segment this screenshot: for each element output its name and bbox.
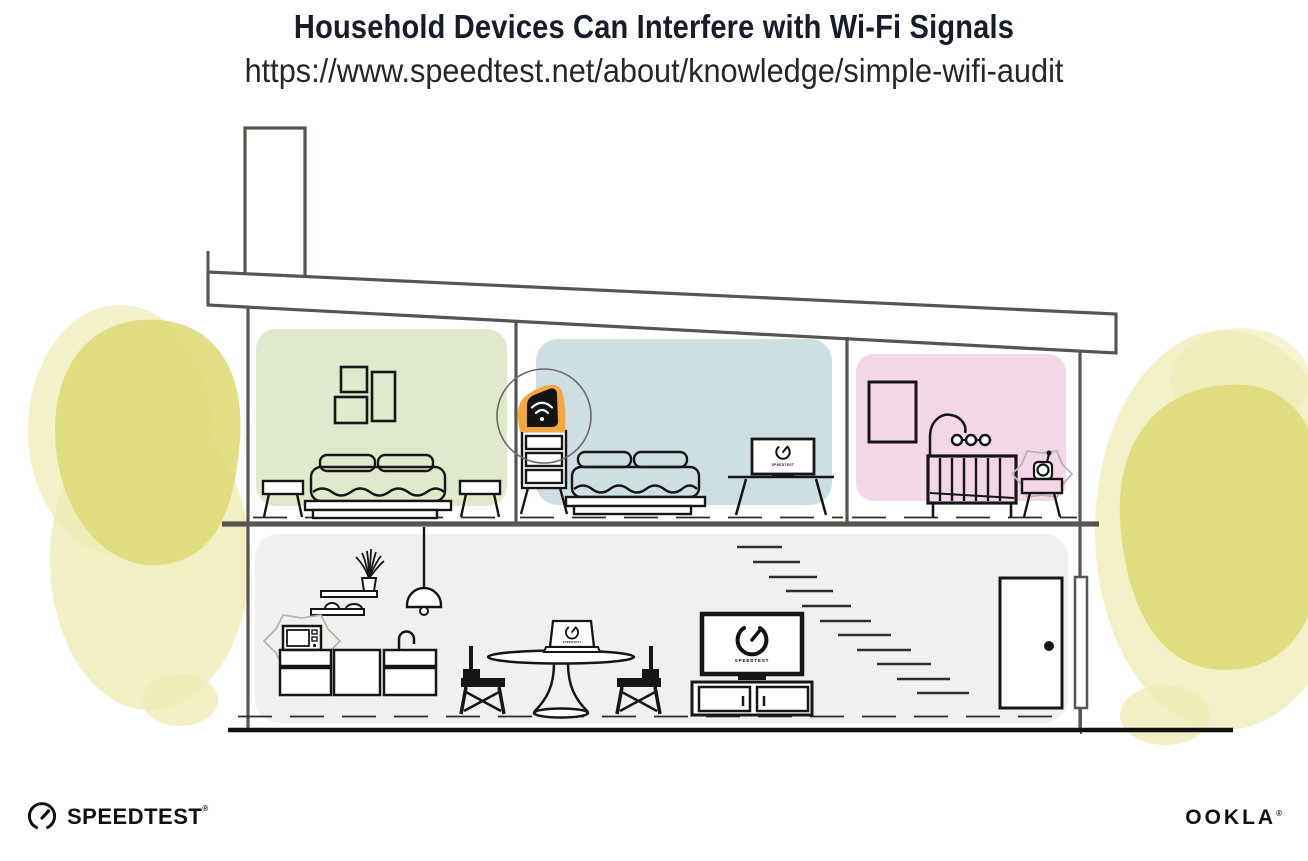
ookla-logo: OOKLA®	[1185, 806, 1282, 830]
laptop: SPEEDTEST	[544, 621, 600, 652]
speedtest-gauge-icon	[26, 801, 58, 833]
bedroom-blue-wall	[536, 339, 832, 505]
living-tv-screen-label: SPEEDTEST	[735, 658, 770, 663]
living-room: SPEEDTEST	[692, 614, 812, 715]
bedroom-tv-screen-label: SPEEDTEST	[772, 463, 795, 467]
chimney	[245, 128, 305, 282]
laptop-screen-label: SPEEDTEST	[563, 640, 582, 644]
front-door	[1000, 578, 1062, 708]
bedroom-green-wall	[256, 329, 507, 506]
downpipe	[1075, 577, 1087, 734]
speedtest-logo: SPEEDTEST®	[26, 801, 209, 833]
house-illustration: SPEEDTEST	[0, 0, 1308, 861]
door-knob	[1044, 641, 1054, 651]
ookla-wordmark: OOKLA	[1185, 806, 1276, 829]
bedroom-tv: SPEEDTEST	[752, 439, 814, 478]
speedtest-wordmark: SPEEDTEST®	[67, 804, 209, 830]
tree-left	[28, 305, 250, 726]
living-room-tv: SPEEDTEST	[702, 614, 802, 680]
registered-mark: ®	[1276, 809, 1282, 818]
tree-right	[1095, 328, 1308, 745]
media-console	[692, 682, 812, 715]
wifi-router	[518, 385, 565, 432]
microwave	[283, 626, 321, 650]
registered-mark: ®	[202, 804, 208, 813]
